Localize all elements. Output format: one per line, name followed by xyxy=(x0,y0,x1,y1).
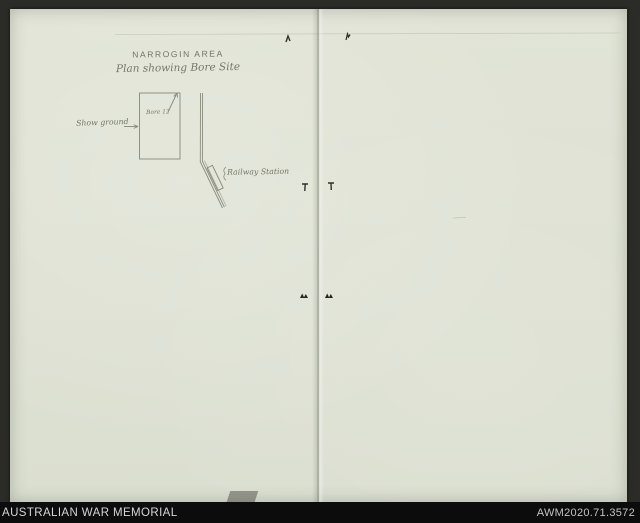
plan-subtitle: Plan showing Bore Site xyxy=(108,61,248,75)
plan-title: NARROGIN AREA xyxy=(122,48,234,59)
paper-sheet: NARROGIN AREA Plan showing Bore Site Bor… xyxy=(10,9,627,502)
footer-bar: AUSTRALIAN WAR MEMORIAL AWM2020.71.3572 xyxy=(0,502,640,523)
staple-mark xyxy=(328,183,334,190)
bore-label: Bore 12 xyxy=(146,108,170,115)
institution-label: AUSTRALIAN WAR MEMORIAL xyxy=(2,507,178,519)
railway-track-vertical xyxy=(200,93,202,162)
showground-label: Show ground xyxy=(76,117,129,128)
staple-mark xyxy=(346,34,350,40)
staple-mark xyxy=(325,294,333,299)
smudge-mark xyxy=(453,218,466,219)
ruled-line xyxy=(115,33,620,35)
railway-station-label: Railway Station xyxy=(227,167,289,177)
accession-number: AWM2020.71.3572 xyxy=(537,507,635,519)
staple-mark xyxy=(300,294,308,299)
staple-mark xyxy=(302,184,308,191)
page-fold xyxy=(312,9,324,502)
showground-rectangle xyxy=(140,93,181,159)
staple-mark xyxy=(286,36,290,42)
brace-mark xyxy=(224,167,226,180)
